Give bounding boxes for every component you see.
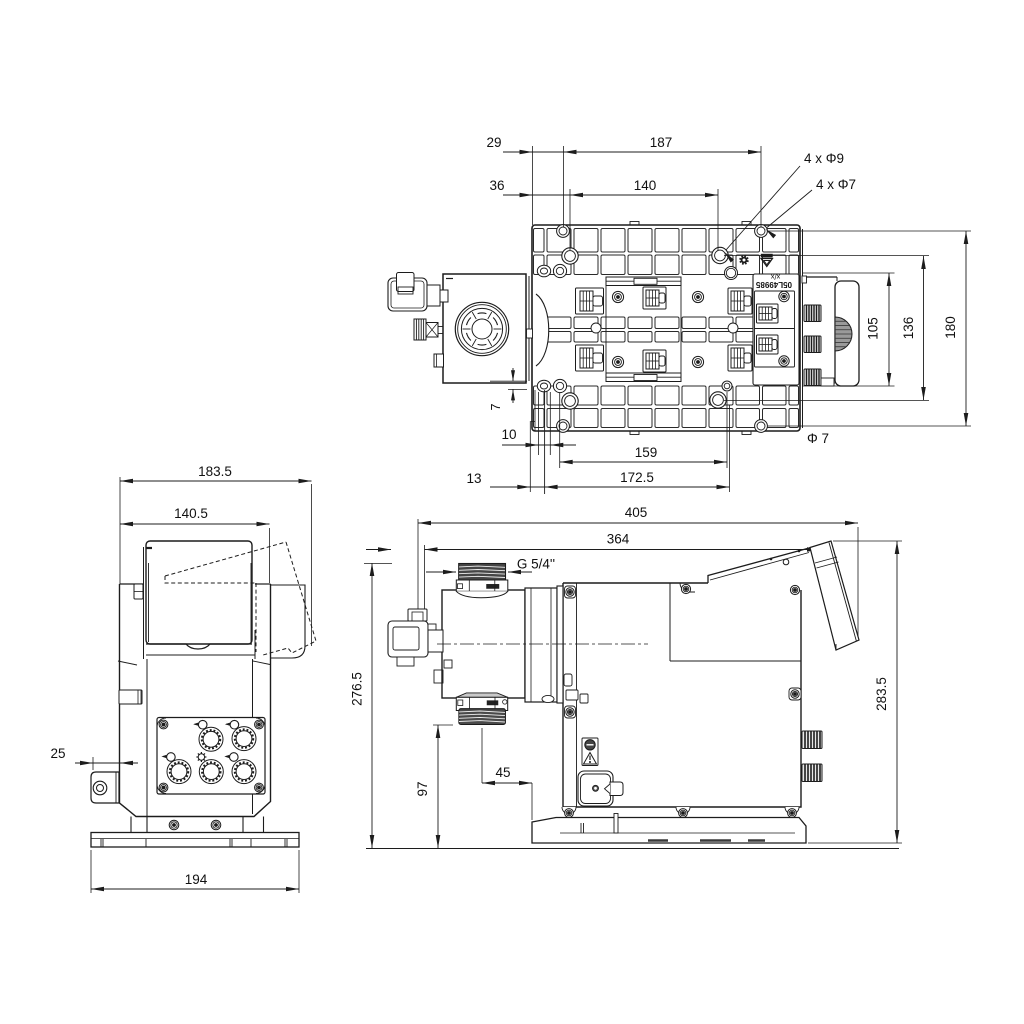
svg-text:05L49985: 05L49985	[755, 280, 792, 289]
svg-text:187: 187	[650, 135, 673, 150]
svg-text:180: 180	[943, 316, 958, 339]
svg-text:276.5: 276.5	[350, 672, 365, 706]
svg-text:140.5: 140.5	[174, 506, 208, 521]
svg-text:364: 364	[607, 532, 630, 547]
svg-text:283.5: 283.5	[874, 677, 889, 711]
svg-text:13: 13	[466, 471, 481, 486]
svg-text:105: 105	[866, 317, 881, 340]
svg-text:97: 97	[415, 781, 430, 796]
svg-text:45: 45	[495, 765, 510, 780]
svg-text:194: 194	[185, 872, 208, 887]
svg-text:10: 10	[501, 427, 516, 442]
svg-text:136: 136	[901, 317, 916, 340]
svg-text:183.5: 183.5	[198, 464, 232, 479]
svg-text:29: 29	[486, 135, 501, 150]
svg-text:Φ 7: Φ 7	[807, 431, 829, 446]
svg-text:4 x Φ9: 4 x Φ9	[804, 151, 844, 166]
svg-text:4 x Φ7: 4 x Φ7	[816, 177, 856, 192]
svg-text:7: 7	[489, 403, 503, 410]
svg-text:405: 405	[625, 505, 648, 520]
svg-text:140: 140	[634, 178, 657, 193]
svg-text:25: 25	[50, 746, 65, 761]
svg-text:G 5/4'': G 5/4''	[517, 557, 555, 572]
svg-text:159: 159	[635, 445, 658, 460]
svg-text:36: 36	[489, 178, 504, 193]
svg-text:172.5: 172.5	[620, 470, 654, 485]
